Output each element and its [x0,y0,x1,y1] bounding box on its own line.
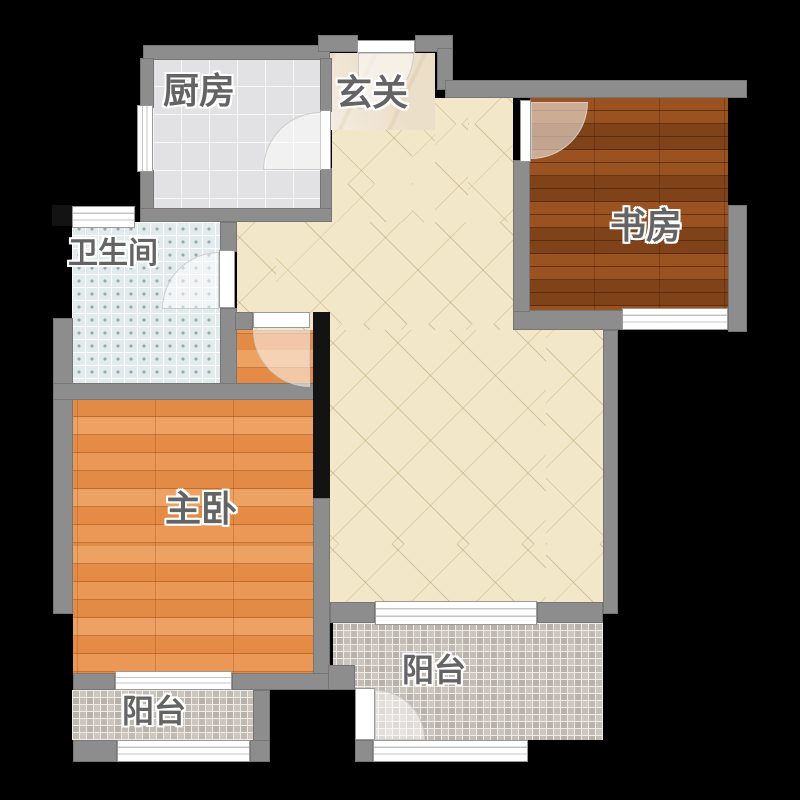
wall [73,740,117,762]
room-label-bedroom: 主卧 [165,480,237,532]
kitchen-door [320,110,331,170]
room-label-entry: 玄关 [336,64,408,116]
balcony-left-window [117,740,250,762]
room-label-bathroom: 卫生间 [68,228,158,272]
study-door [520,100,531,162]
balcony-right-window [373,740,528,762]
wall [52,205,72,226]
wall [603,330,618,614]
wall [220,222,237,252]
wall [232,673,330,690]
wall [513,310,623,330]
wall [53,318,73,614]
wall [140,58,154,108]
balcony-door [355,688,375,740]
wall [73,673,115,690]
study-window [622,308,728,330]
living-floor [330,330,603,602]
wall [328,665,355,690]
wall [320,58,332,112]
room-label-balcony-right: 阳台 [402,645,466,691]
wall [330,602,375,623]
wall [445,80,747,98]
bedroom-door [253,312,310,328]
wall [313,312,330,498]
wall [728,205,747,332]
entry-door [357,40,415,53]
wall [355,740,373,762]
wall [140,170,154,210]
wall [513,160,530,312]
wall [253,690,270,742]
wall [235,312,253,330]
wall [313,498,330,690]
room-label-balcony-left: 阳台 [122,686,186,732]
living-floor [435,98,513,222]
wall [140,208,332,222]
room-label-kitchen: 厨房 [163,62,235,114]
bathroom-door [219,250,235,308]
room-label-study: 书房 [610,197,682,249]
floor-plan: 厨房 玄关 书房 卫生间 主卧 阳台 阳台 [0,0,800,800]
wall [53,383,330,400]
living-floor [332,130,435,222]
bedroom-floor [73,400,313,673]
wall [250,740,270,762]
wall [537,602,603,623]
balcony-right-floor [333,623,603,688]
kitchen-window [137,105,153,172]
wall [318,35,358,52]
bathroom-window [72,206,135,228]
wall [143,45,330,60]
living-balcony-window [375,601,537,625]
